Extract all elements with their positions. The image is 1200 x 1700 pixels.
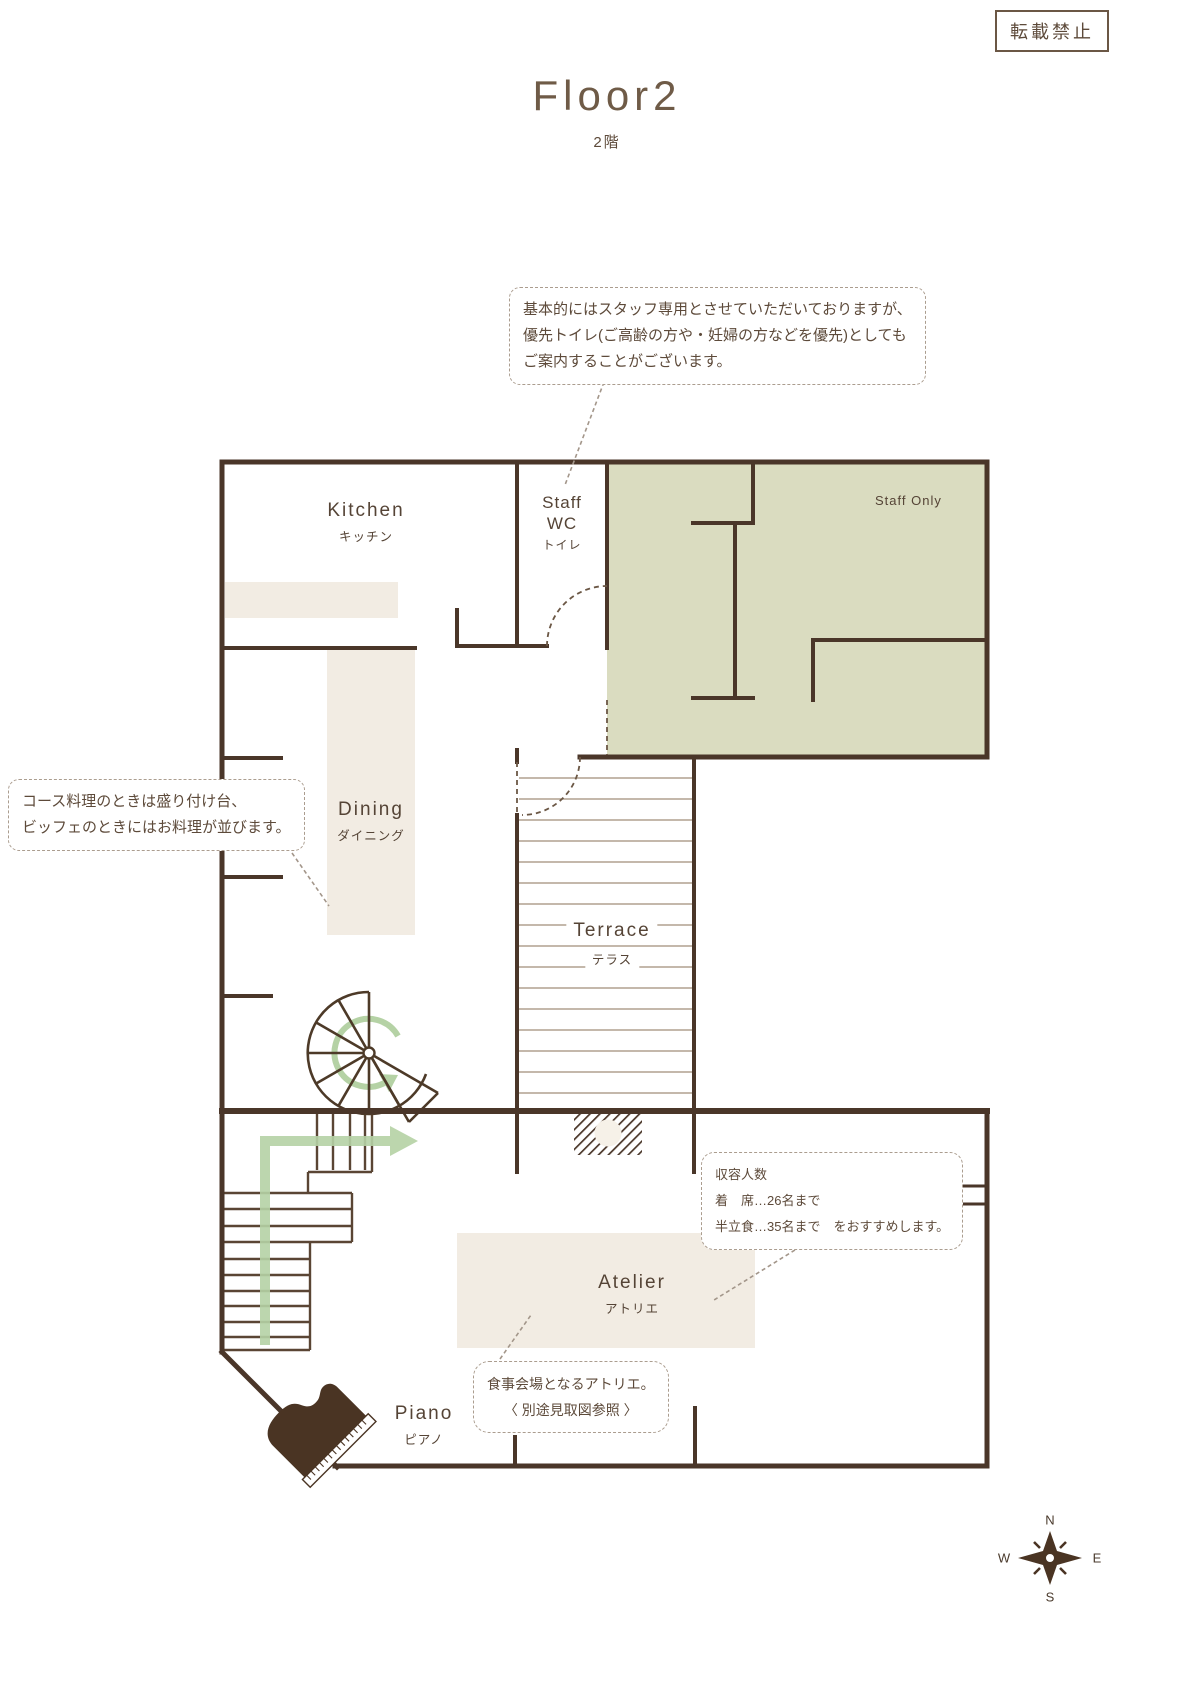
page-title: Floor2 xyxy=(532,72,681,120)
kitchen-counter xyxy=(225,582,398,618)
terrace-label-en: Terrace xyxy=(566,920,657,942)
staircase xyxy=(222,1114,372,1350)
staff-only-label: Staff Only xyxy=(875,493,942,508)
wc-note-line3: ご案内することがございます。 xyxy=(523,349,912,375)
compass-w: W xyxy=(998,1551,1010,1566)
capacity-note-line3: 半立食…35名まで をおすすめします。 xyxy=(715,1214,949,1240)
dining-note-line2: ビッフェのときにはお料理が並びます。 xyxy=(22,815,291,841)
wc-note-bubble: 基本的にはスタッフ専用とさせていただいておりますが、 優先トイレ(ご高齢の方や・… xyxy=(509,287,926,385)
no-reproduction-badge: 転載禁止 xyxy=(995,10,1109,52)
compass-s: S xyxy=(1046,1590,1055,1605)
staff-wc-label-line1: Staff xyxy=(542,492,582,513)
leader-wc-note xyxy=(565,382,604,485)
atelier-note-line2: 〈 別途見取図参照 〉 xyxy=(487,1397,655,1423)
piano-label-ja: ピアノ xyxy=(395,1429,454,1448)
door-arc-wc xyxy=(547,586,607,646)
door-arcs xyxy=(517,586,607,815)
dining-label: Dining ダイニング xyxy=(337,799,405,844)
capacity-note-line2: 着 席…26名まで xyxy=(715,1188,949,1214)
wc-note-line2: 優先トイレ(ご高齢の方や・妊婦の方などを優先)としても xyxy=(523,323,912,349)
atelier-label-en: Atelier xyxy=(598,1272,666,1294)
page-subtitle: 2階 xyxy=(593,131,620,152)
spiral-staircase xyxy=(308,992,438,1122)
dining-note-line1: コース料理のときは盛り付け台、 xyxy=(22,789,291,815)
piano-icon xyxy=(257,1368,376,1487)
door-arc-terrace xyxy=(522,757,580,815)
dining-label-en: Dining xyxy=(337,799,405,821)
kitchen-label-en: Kitchen xyxy=(327,500,404,522)
kitchen-label: Kitchen キッチン xyxy=(327,500,404,545)
leader-dining-note xyxy=(292,853,329,906)
piano-label: Piano ピアノ xyxy=(395,1403,454,1448)
capacity-note-bubble: 収容人数 着 席…26名まで 半立食…35名まで をおすすめします。 xyxy=(701,1152,963,1250)
terrace-label: Terrace テラス xyxy=(566,920,657,969)
kitchen-label-ja: キッチン xyxy=(327,526,404,545)
capacity-note-line1: 収容人数 xyxy=(715,1162,949,1188)
column-hatch xyxy=(574,1111,642,1155)
wc-note-line1: 基本的にはスタッフ専用とさせていただいておりますが、 xyxy=(523,297,912,323)
flow-arrow xyxy=(265,1126,418,1345)
dining-note-bubble: コース料理のときは盛り付け台、 ビッフェのときにはお料理が並びます。 xyxy=(8,779,305,851)
atelier-note-line1: 食事会場となるアトリエ。 xyxy=(487,1371,655,1397)
staff-wc-label: Staff WC トイレ xyxy=(542,492,582,553)
dining-serving-table xyxy=(327,648,415,935)
terrace-label-ja: テラス xyxy=(585,949,639,968)
piano-label-en: Piano xyxy=(395,1403,454,1425)
staff-wc-label-ja: トイレ xyxy=(542,536,582,553)
staff-wc-label-line2: WC xyxy=(542,513,582,534)
compass-e: E xyxy=(1093,1551,1102,1566)
dining-label-ja: ダイニング xyxy=(337,825,405,844)
atelier-note-bubble: 食事会場となるアトリエ。 〈 別途見取図参照 〉 xyxy=(473,1361,669,1433)
compass-n: N xyxy=(1045,1513,1054,1528)
atelier-label-ja: アトリエ xyxy=(598,1298,666,1317)
atelier-label: Atelier アトリエ xyxy=(598,1272,666,1317)
compass-rose xyxy=(1018,1531,1082,1585)
